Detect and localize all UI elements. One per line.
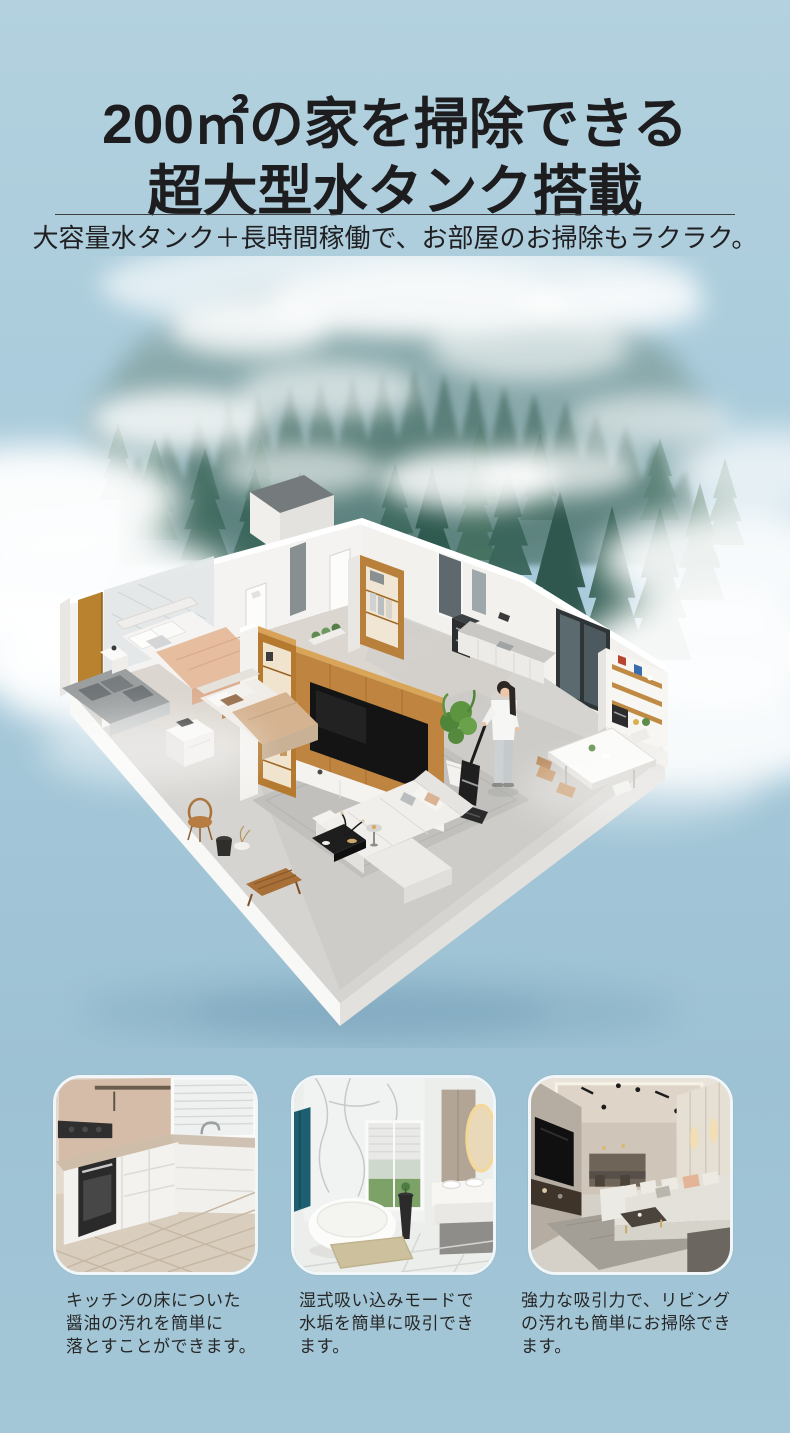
page-title: 200㎡の家を掃除できる 超大型水タンク搭載 [0,91,790,225]
feature-caption-kitchen: キッチンの床についた 醤油の汚れを簡単に 落とすことができます。 [66,1289,298,1358]
feature-image-kitchen [53,1075,258,1275]
kitchen-scene [56,1078,255,1272]
bathroom-scene [294,1078,493,1272]
page-title-line1: 200㎡の家を掃除できる [0,91,790,158]
living-room-scene [531,1078,730,1272]
product-feature-page: 200㎡の家を掃除できる 超大型水タンク搭載 大容量水タンク＋長時間稼働で、お部… [0,0,790,1433]
floor-plan-scene [0,256,790,1048]
hero-illustration [0,256,790,1048]
feature-image-living-room [528,1075,733,1275]
feature-image-bathroom [291,1075,496,1275]
feature-caption-bathroom: 湿式吸い込みモードで 水垢を簡単に吸引でき ます。 [299,1289,531,1358]
subtitle: 大容量水タンク＋長時間稼働で、お部屋のお掃除もラクラク。 [0,220,790,256]
wardrobe-unit [348,555,404,660]
feature-caption-living-room: 強力な吸引力で、リビング の汚れも簡単にお掃除でき ます。 [521,1289,753,1358]
divider-line [55,214,735,215]
